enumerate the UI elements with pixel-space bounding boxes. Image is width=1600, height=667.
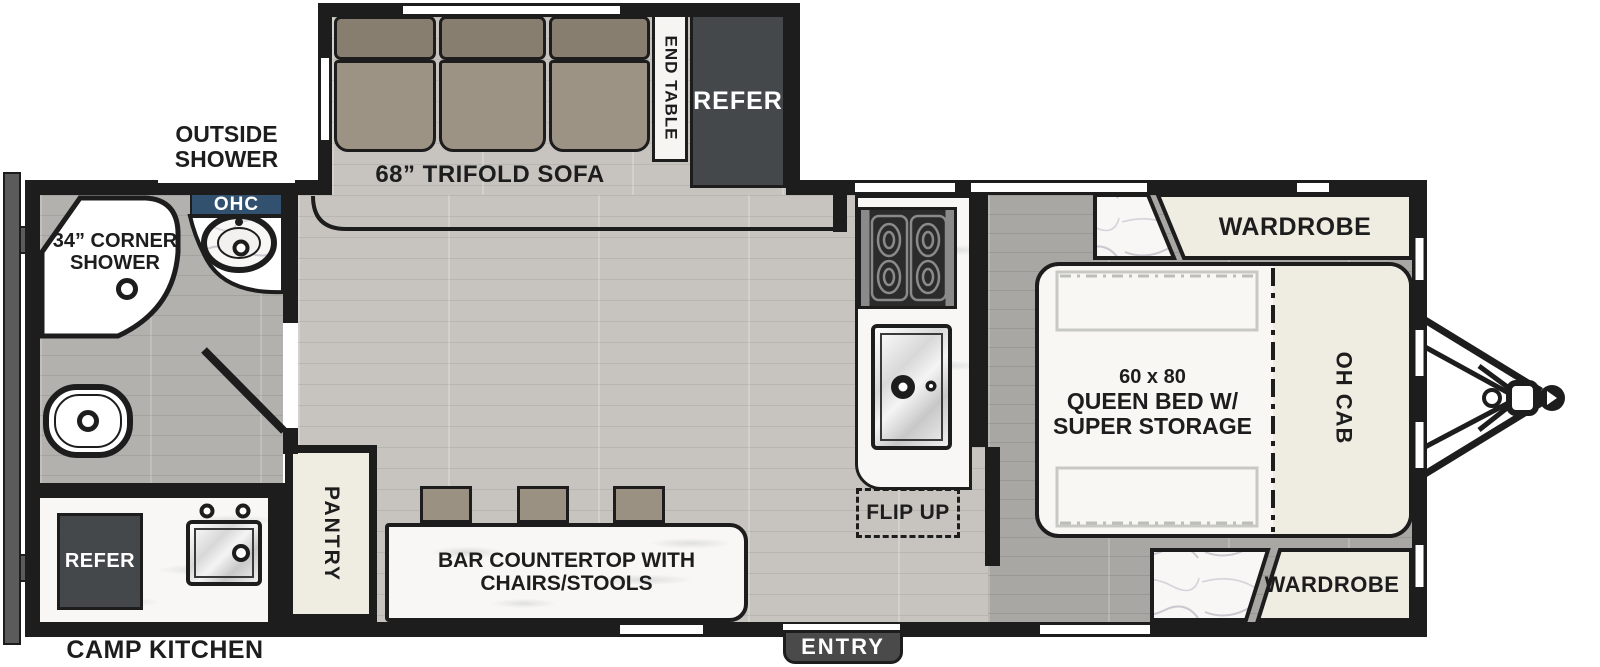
corner-shower-line2: SHOWER <box>70 253 160 275</box>
kitchen-sink <box>871 324 952 450</box>
hitch-jack-icon <box>1484 390 1500 406</box>
bedroom-divider-wall-lower <box>985 447 1000 566</box>
bar-stool <box>517 486 569 523</box>
sofa-label: 68” TRIFOLD SOFA <box>350 160 630 190</box>
flip-up-label: FLIP UP <box>866 501 950 525</box>
bed-label: 60 x 80 QUEEN BED W/ SUPER STORAGE <box>1045 362 1260 444</box>
camp-sink-basin <box>194 528 254 578</box>
window-kitchen <box>855 183 955 192</box>
kitchen-sink-basin <box>880 333 943 441</box>
pantry: PANTRY <box>285 445 377 622</box>
bar-label-line2: CHAIRS/STOOLS <box>480 573 652 596</box>
ohc-cabinet: OHC <box>190 193 283 216</box>
wardrobe-top-text: WARDROBE <box>1219 213 1372 242</box>
bar-stool <box>420 486 472 523</box>
corner-shower-label: 34” CORNER SHOWER <box>45 224 185 282</box>
window-slideout-top <box>403 6 620 14</box>
entry-tab: ENTRY <box>783 630 903 664</box>
window-wardrobe-top <box>1297 183 1329 192</box>
sofa-label-text: 68” TRIFOLD SOFA <box>375 161 604 189</box>
window-slideout-left <box>321 58 329 140</box>
wardrobe-bottom-text: WARDROBE <box>1265 572 1400 598</box>
outside-shower-label: OUTSIDE SHOWER <box>158 110 295 183</box>
camp-kitchen-refrigerator: REFER <box>57 513 143 610</box>
oh-cab: OH CAB <box>1303 328 1383 468</box>
bathroom-wall <box>283 195 298 323</box>
sofa-seat-cushion <box>549 60 650 152</box>
bed-type-label: QUEEN BED W/ <box>1067 389 1238 414</box>
oh-cab-label: OH CAB <box>1330 352 1356 445</box>
slideout-wall-right <box>786 3 800 195</box>
outside-shower-line2: SHOWER <box>175 147 279 172</box>
slideout-refrigerator: REFER <box>690 14 786 188</box>
ohc-label: OHC <box>214 194 259 216</box>
camp-kitchen-sink <box>186 520 262 586</box>
rv-floorplan: END TABLE REFER FLIP UP PANTRY BAR COUNT… <box>0 0 1600 667</box>
wall-front-right <box>1412 180 1427 637</box>
flip-up-counter: FLIP UP <box>856 488 960 538</box>
sofa-back-cushion <box>334 16 436 60</box>
slideout-refrigerator-label: REFER <box>693 87 783 116</box>
bedroom-divider-wall <box>972 195 988 447</box>
sofa-back-cushion <box>549 16 650 60</box>
pantry-label: PANTRY <box>319 486 343 582</box>
entry-label: ENTRY <box>801 634 885 660</box>
window-bottom-bedroom <box>1040 625 1150 634</box>
bar-stool <box>613 486 665 523</box>
wardrobe-top-label: WARDROBE <box>1190 211 1400 243</box>
camp-refrigerator-label: REFER <box>65 550 135 573</box>
kitchen-wall-stub <box>833 195 847 232</box>
door-jamb-stub <box>283 428 298 454</box>
end-table: END TABLE <box>652 14 688 162</box>
window-bedroom-top <box>971 183 1147 192</box>
window-bottom-bar <box>620 625 703 634</box>
bathroom-campkitchen-wall <box>25 483 283 498</box>
outside-shower-line1: OUTSIDE <box>175 122 277 147</box>
sofa-back-cushion <box>439 16 546 60</box>
sofa-seat-cushion <box>334 60 436 152</box>
bar-label-line1: BAR COUNTERTOP WITH <box>438 550 695 573</box>
corner-shower-line1: 34” CORNER <box>53 231 177 253</box>
bar-countertop: BAR COUNTERTOP WITH CHAIRS/STOOLS <box>385 523 748 622</box>
wardrobe-bottom-label: WARDROBE <box>1258 568 1406 602</box>
end-table-label: END TABLE <box>660 35 680 140</box>
sofa-seat-cushion <box>439 60 546 152</box>
stove-cooktop <box>858 207 957 309</box>
wall-rear-left <box>25 180 40 637</box>
camp-kitchen-text: CAMP KITCHEN <box>66 636 263 665</box>
campkitchen-pantry-wall <box>268 483 285 622</box>
hitch-coupler-icon <box>1539 385 1565 411</box>
bed-size-label: 60 x 80 <box>1119 367 1186 389</box>
camp-kitchen-label: CAMP KITCHEN <box>45 636 285 664</box>
hitch <box>1425 320 1565 474</box>
bed-storage-label: SUPER STORAGE <box>1053 414 1252 439</box>
